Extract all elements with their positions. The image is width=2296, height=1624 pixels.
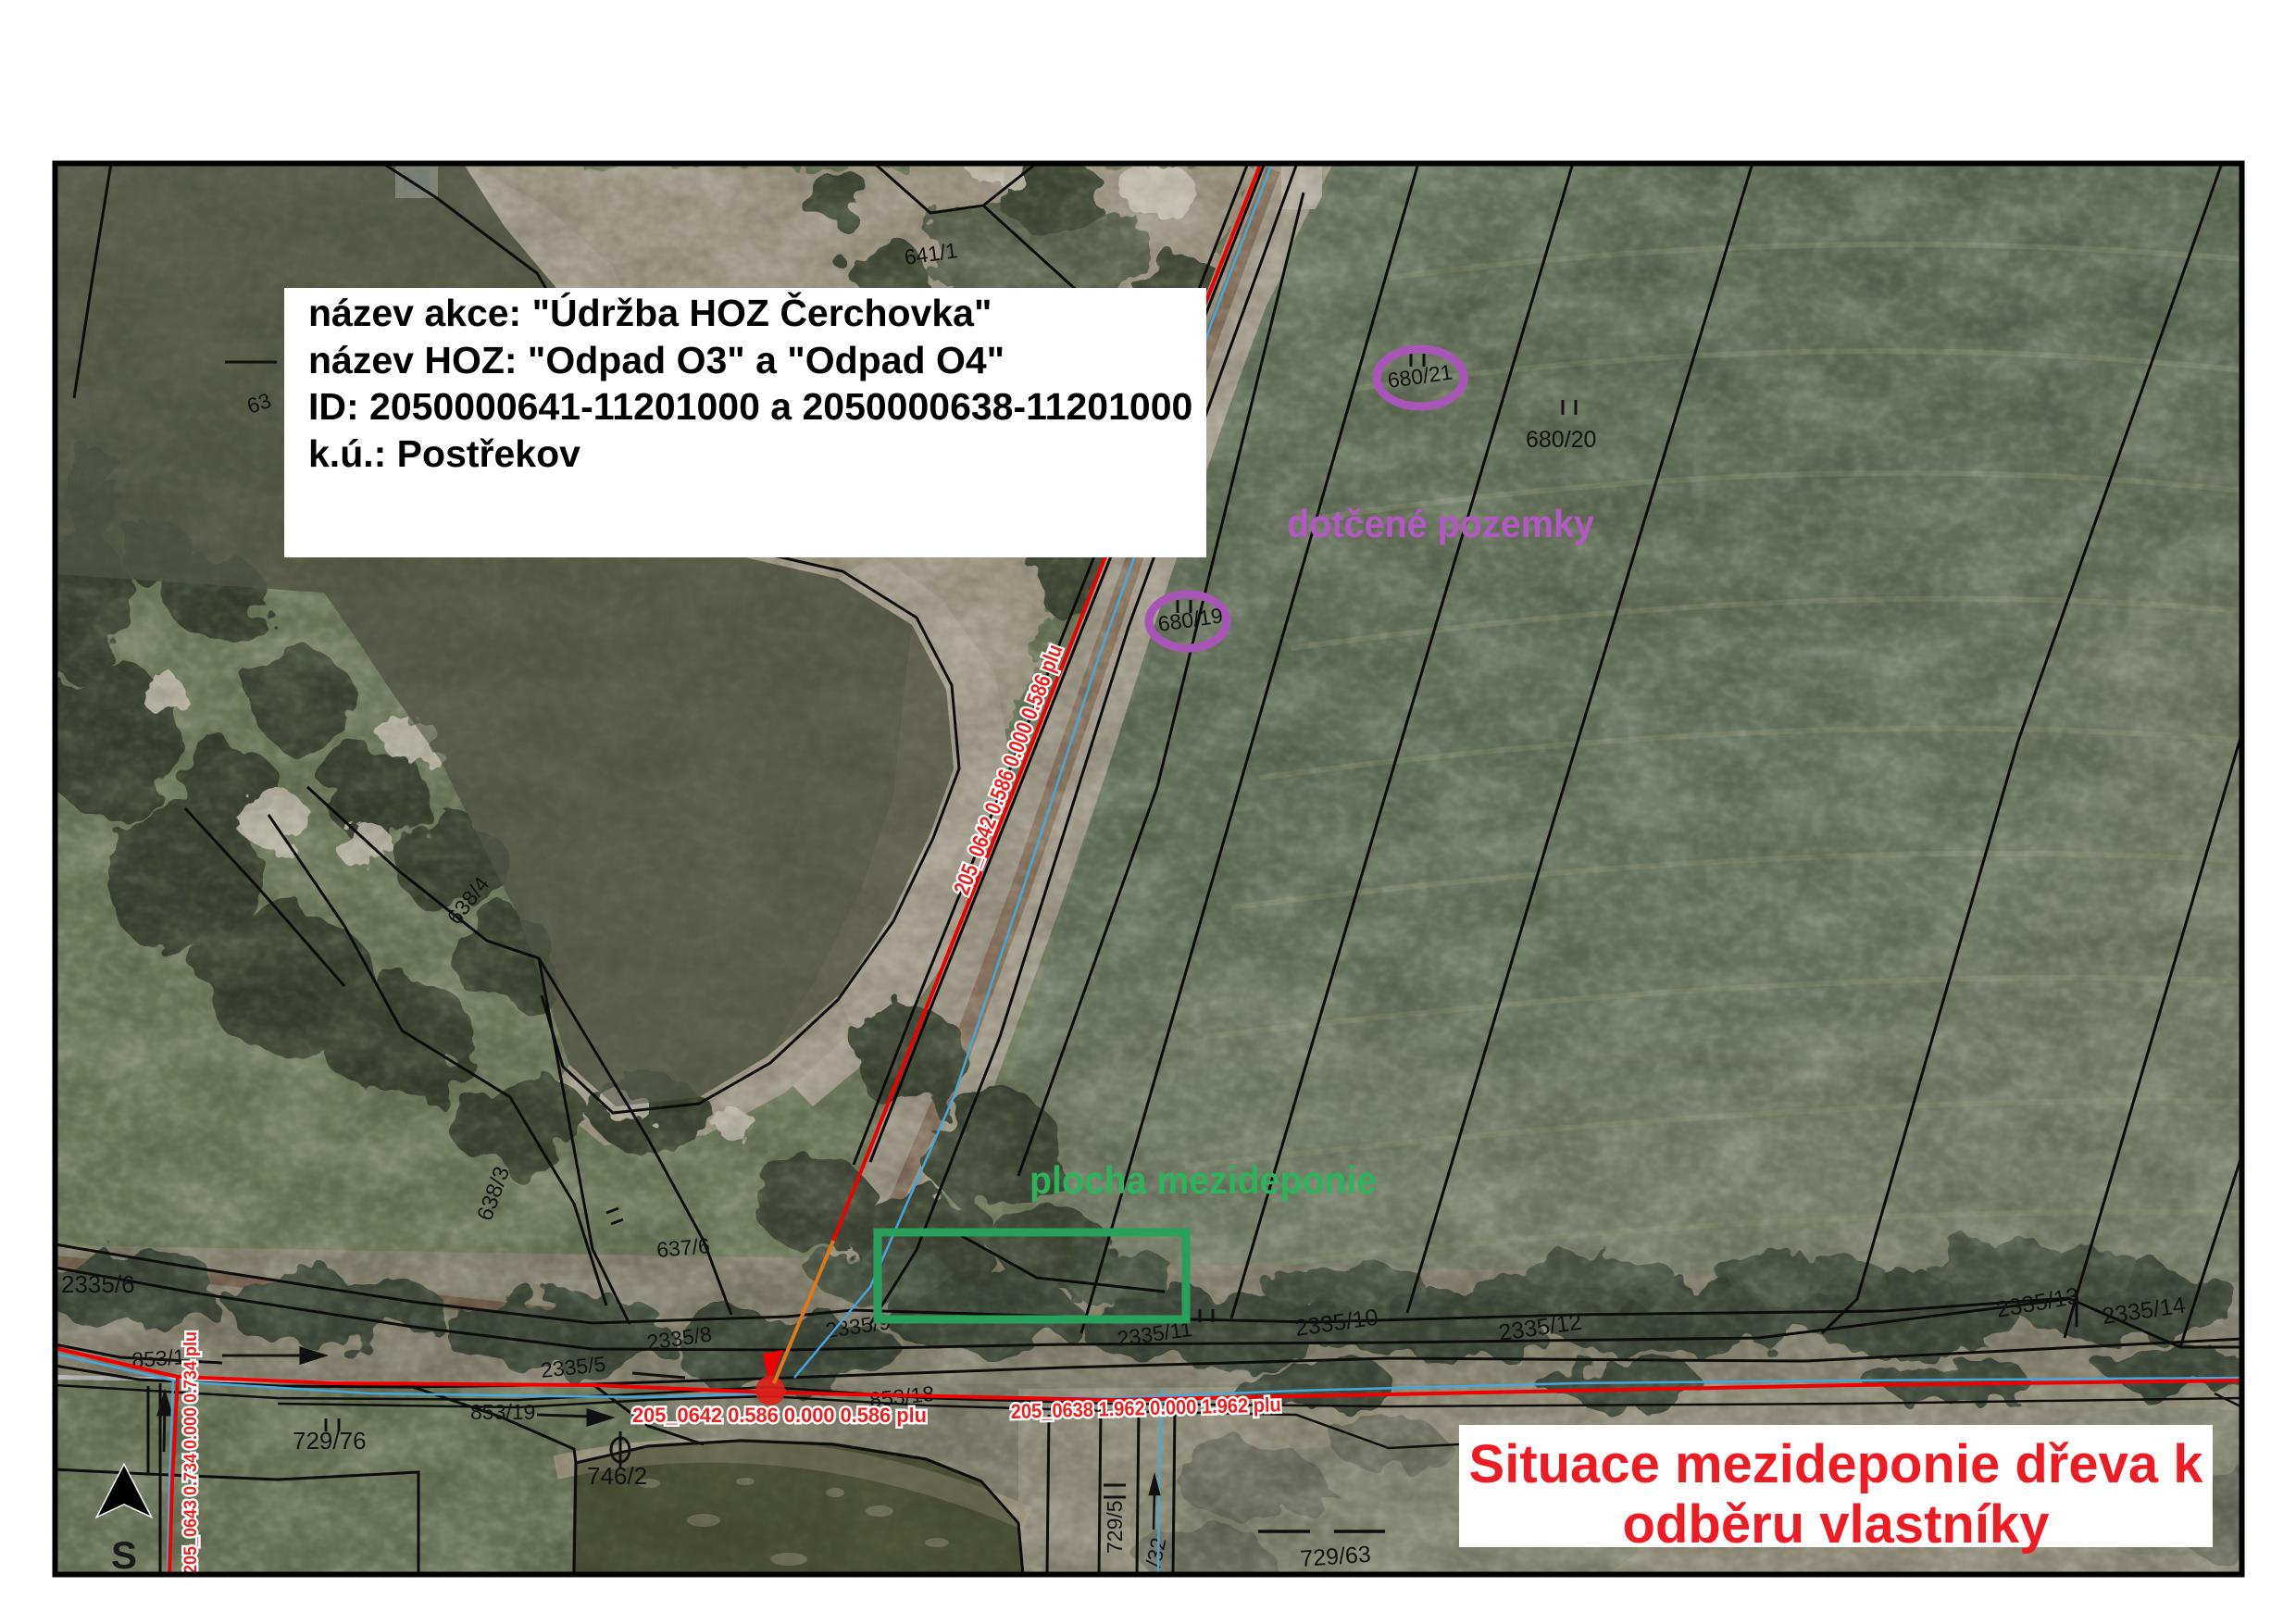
svg-text:Situace mezideponie dřeva k: Situace mezideponie dřeva k bbox=[1469, 1434, 2204, 1494]
svg-text:729/76: 729/76 bbox=[293, 1427, 367, 1455]
svg-text:746/2: 746/2 bbox=[587, 1462, 647, 1490]
svg-text:2335/6: 2335/6 bbox=[61, 1270, 135, 1298]
svg-text:729/63: 729/63 bbox=[1299, 1542, 1371, 1572]
svg-text:205_0643 0.734 0.000 0.734 plu: 205_0643 0.734 0.000 0.734 plu bbox=[181, 1331, 201, 1574]
svg-text:ID: 2050000641-11201000 a 2050: ID: 2050000641-11201000 a 2050000638-112… bbox=[308, 385, 1192, 428]
svg-text:853/19: 853/19 bbox=[470, 1400, 535, 1424]
svg-text:S: S bbox=[111, 1533, 137, 1577]
svg-text:205_0642 0.586 0.000 0.586 plu: 205_0642 0.586 0.000 0.586 plu bbox=[632, 1404, 927, 1427]
svg-text:729/5: 729/5 bbox=[1103, 1500, 1127, 1554]
svg-text:název akce: "Údržba HOZ Čercho: název akce: "Údržba HOZ Čerchovka" bbox=[308, 292, 992, 334]
svg-text:637/6: 637/6 bbox=[655, 1233, 711, 1262]
svg-text:název HOZ: "Odpad O3" a "Odpad: název HOZ: "Odpad O3" a "Odpad O4" bbox=[308, 339, 1004, 381]
svg-text:odběru vlastníky: odběru vlastníky bbox=[1623, 1494, 2050, 1555]
svg-text:k.ú.: Postřekov: k.ú.: Postřekov bbox=[308, 432, 580, 475]
svg-text:plocha mezideponie: plocha mezideponie bbox=[1029, 1158, 1377, 1202]
svg-text:dotčené pozemky: dotčené pozemky bbox=[1287, 502, 1595, 545]
svg-text:680/20: 680/20 bbox=[1526, 427, 1596, 453]
